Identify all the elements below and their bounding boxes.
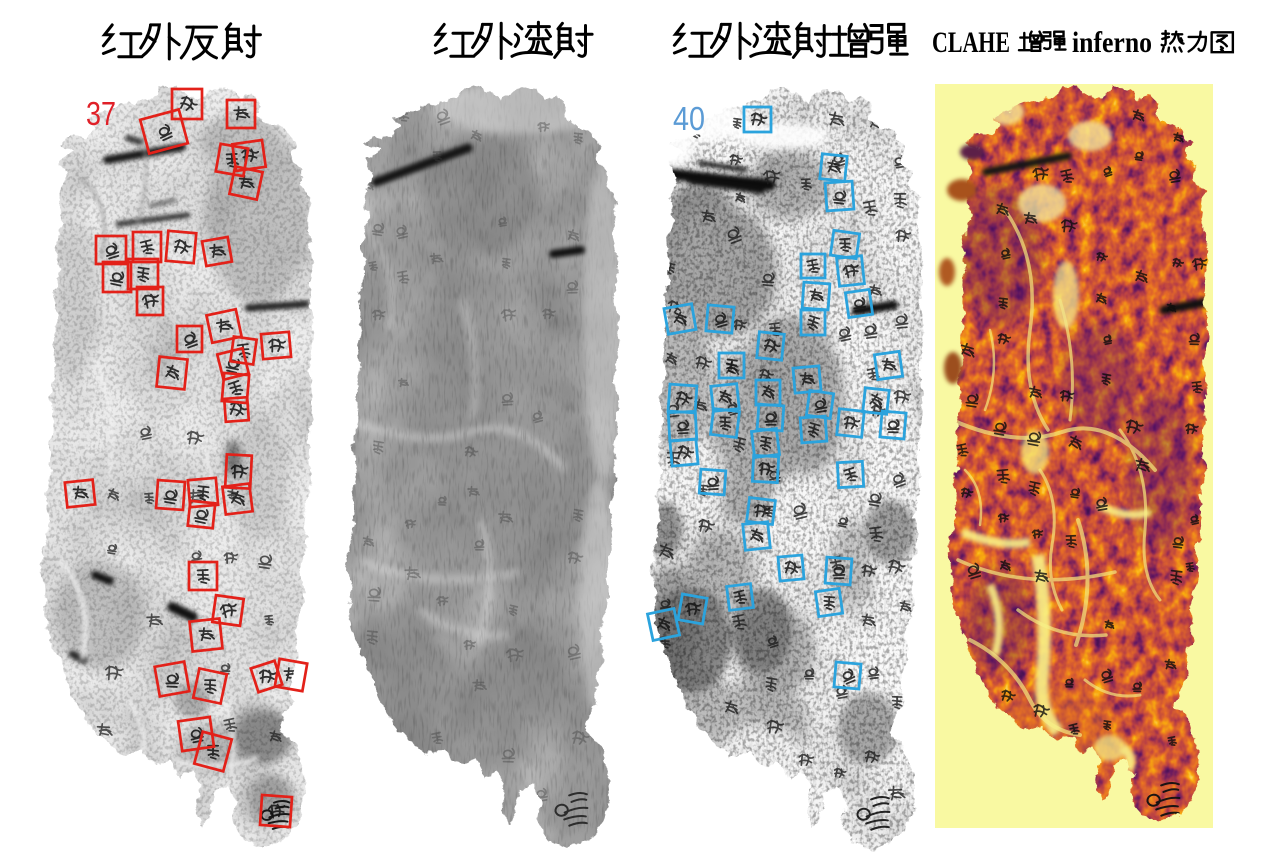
- svg-text:inferno: inferno: [1072, 26, 1152, 59]
- svg-text:37: 37: [86, 95, 116, 132]
- svg-text:CLAHE: CLAHE: [932, 26, 1010, 59]
- svg-text:40: 40: [673, 100, 705, 137]
